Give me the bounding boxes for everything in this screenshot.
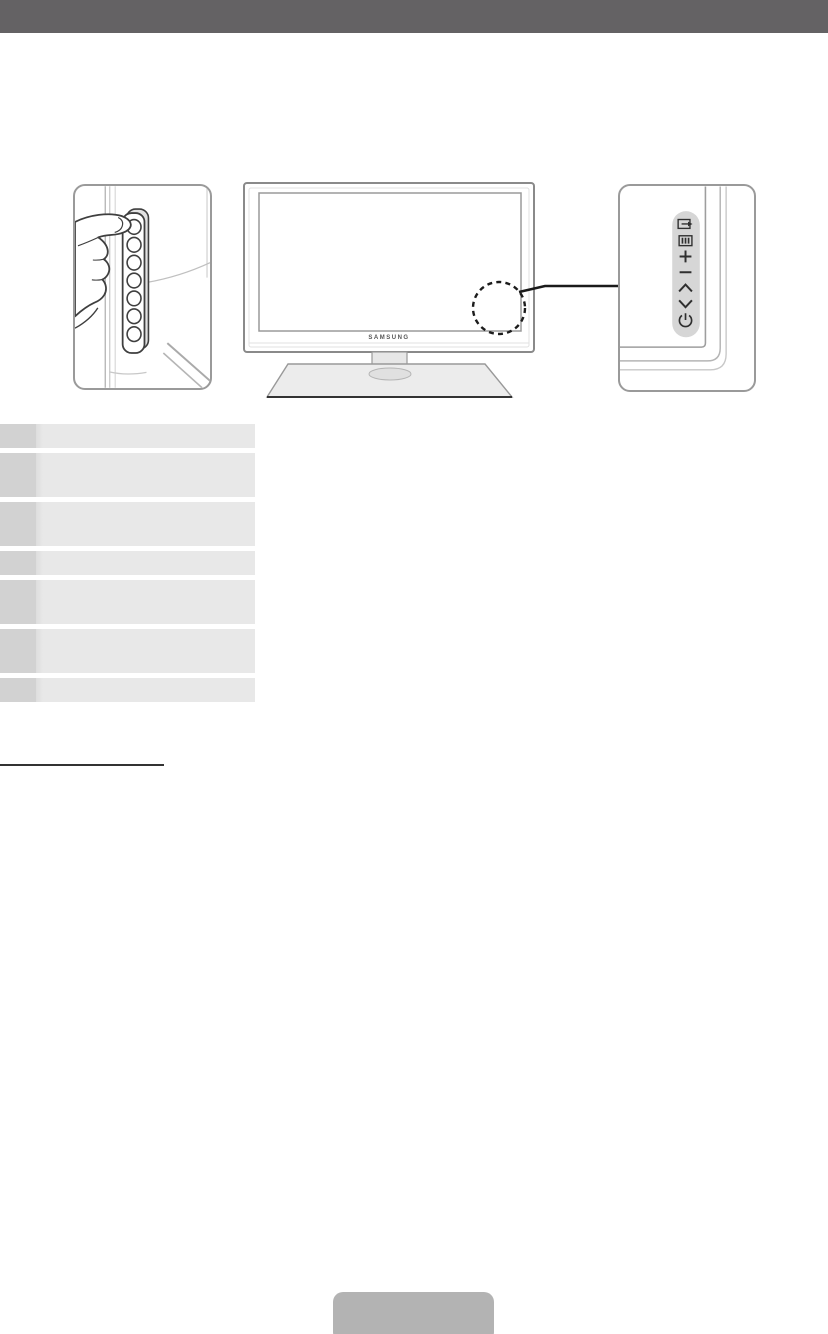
table-cell-description — [36, 678, 255, 702]
table-row — [0, 453, 255, 497]
tv-screen — [259, 193, 521, 331]
figure-control-panel-closeup — [618, 184, 756, 392]
bottom-nav-button[interactable] — [333, 1292, 494, 1334]
connector-polyline — [519, 286, 620, 292]
table-cell-label — [0, 551, 36, 575]
side-button-5 — [127, 291, 141, 306]
table-cell-label — [0, 629, 36, 673]
side-button-2 — [127, 237, 141, 252]
page-header-bar — [0, 0, 828, 33]
table-cell-description — [36, 551, 255, 575]
table-row — [0, 629, 255, 673]
figure-hand-pressing-side-buttons — [73, 184, 212, 390]
figure-tv-front: SAMSUNG — [235, 178, 545, 408]
control-panel-illustration — [620, 186, 754, 390]
table-cell-description — [36, 580, 255, 624]
table-cell-description — [36, 502, 255, 546]
table-cell-label — [0, 678, 36, 702]
table-row — [0, 502, 255, 546]
table-cell-description — [36, 629, 255, 673]
knuckle-line — [92, 280, 102, 281]
stand-neck-shadow — [369, 368, 411, 380]
table-cell-label — [0, 580, 36, 624]
table-row — [0, 678, 255, 702]
table-cell-label — [0, 424, 36, 448]
manual-page: SAMSUNG — [0, 0, 828, 1334]
table-cell-label — [0, 453, 36, 497]
hand-side-buttons-illustration — [75, 186, 210, 388]
callout-connector-line — [505, 274, 620, 304]
side-button-6 — [127, 309, 141, 324]
table-row — [0, 580, 255, 624]
table-row — [0, 424, 255, 448]
side-button-4 — [127, 273, 141, 288]
table-row — [0, 551, 255, 575]
section-rule — [0, 764, 164, 766]
side-button-3 — [127, 255, 141, 270]
stand-leg-line — [163, 353, 202, 388]
samsung-logo: SAMSUNG — [368, 335, 409, 341]
table-cell-label — [0, 502, 36, 546]
tv-bezel-line — [146, 263, 210, 283]
description-table — [0, 424, 255, 707]
side-button-7 — [127, 327, 141, 342]
table-cell-description — [36, 424, 255, 448]
table-cell-description — [36, 453, 255, 497]
